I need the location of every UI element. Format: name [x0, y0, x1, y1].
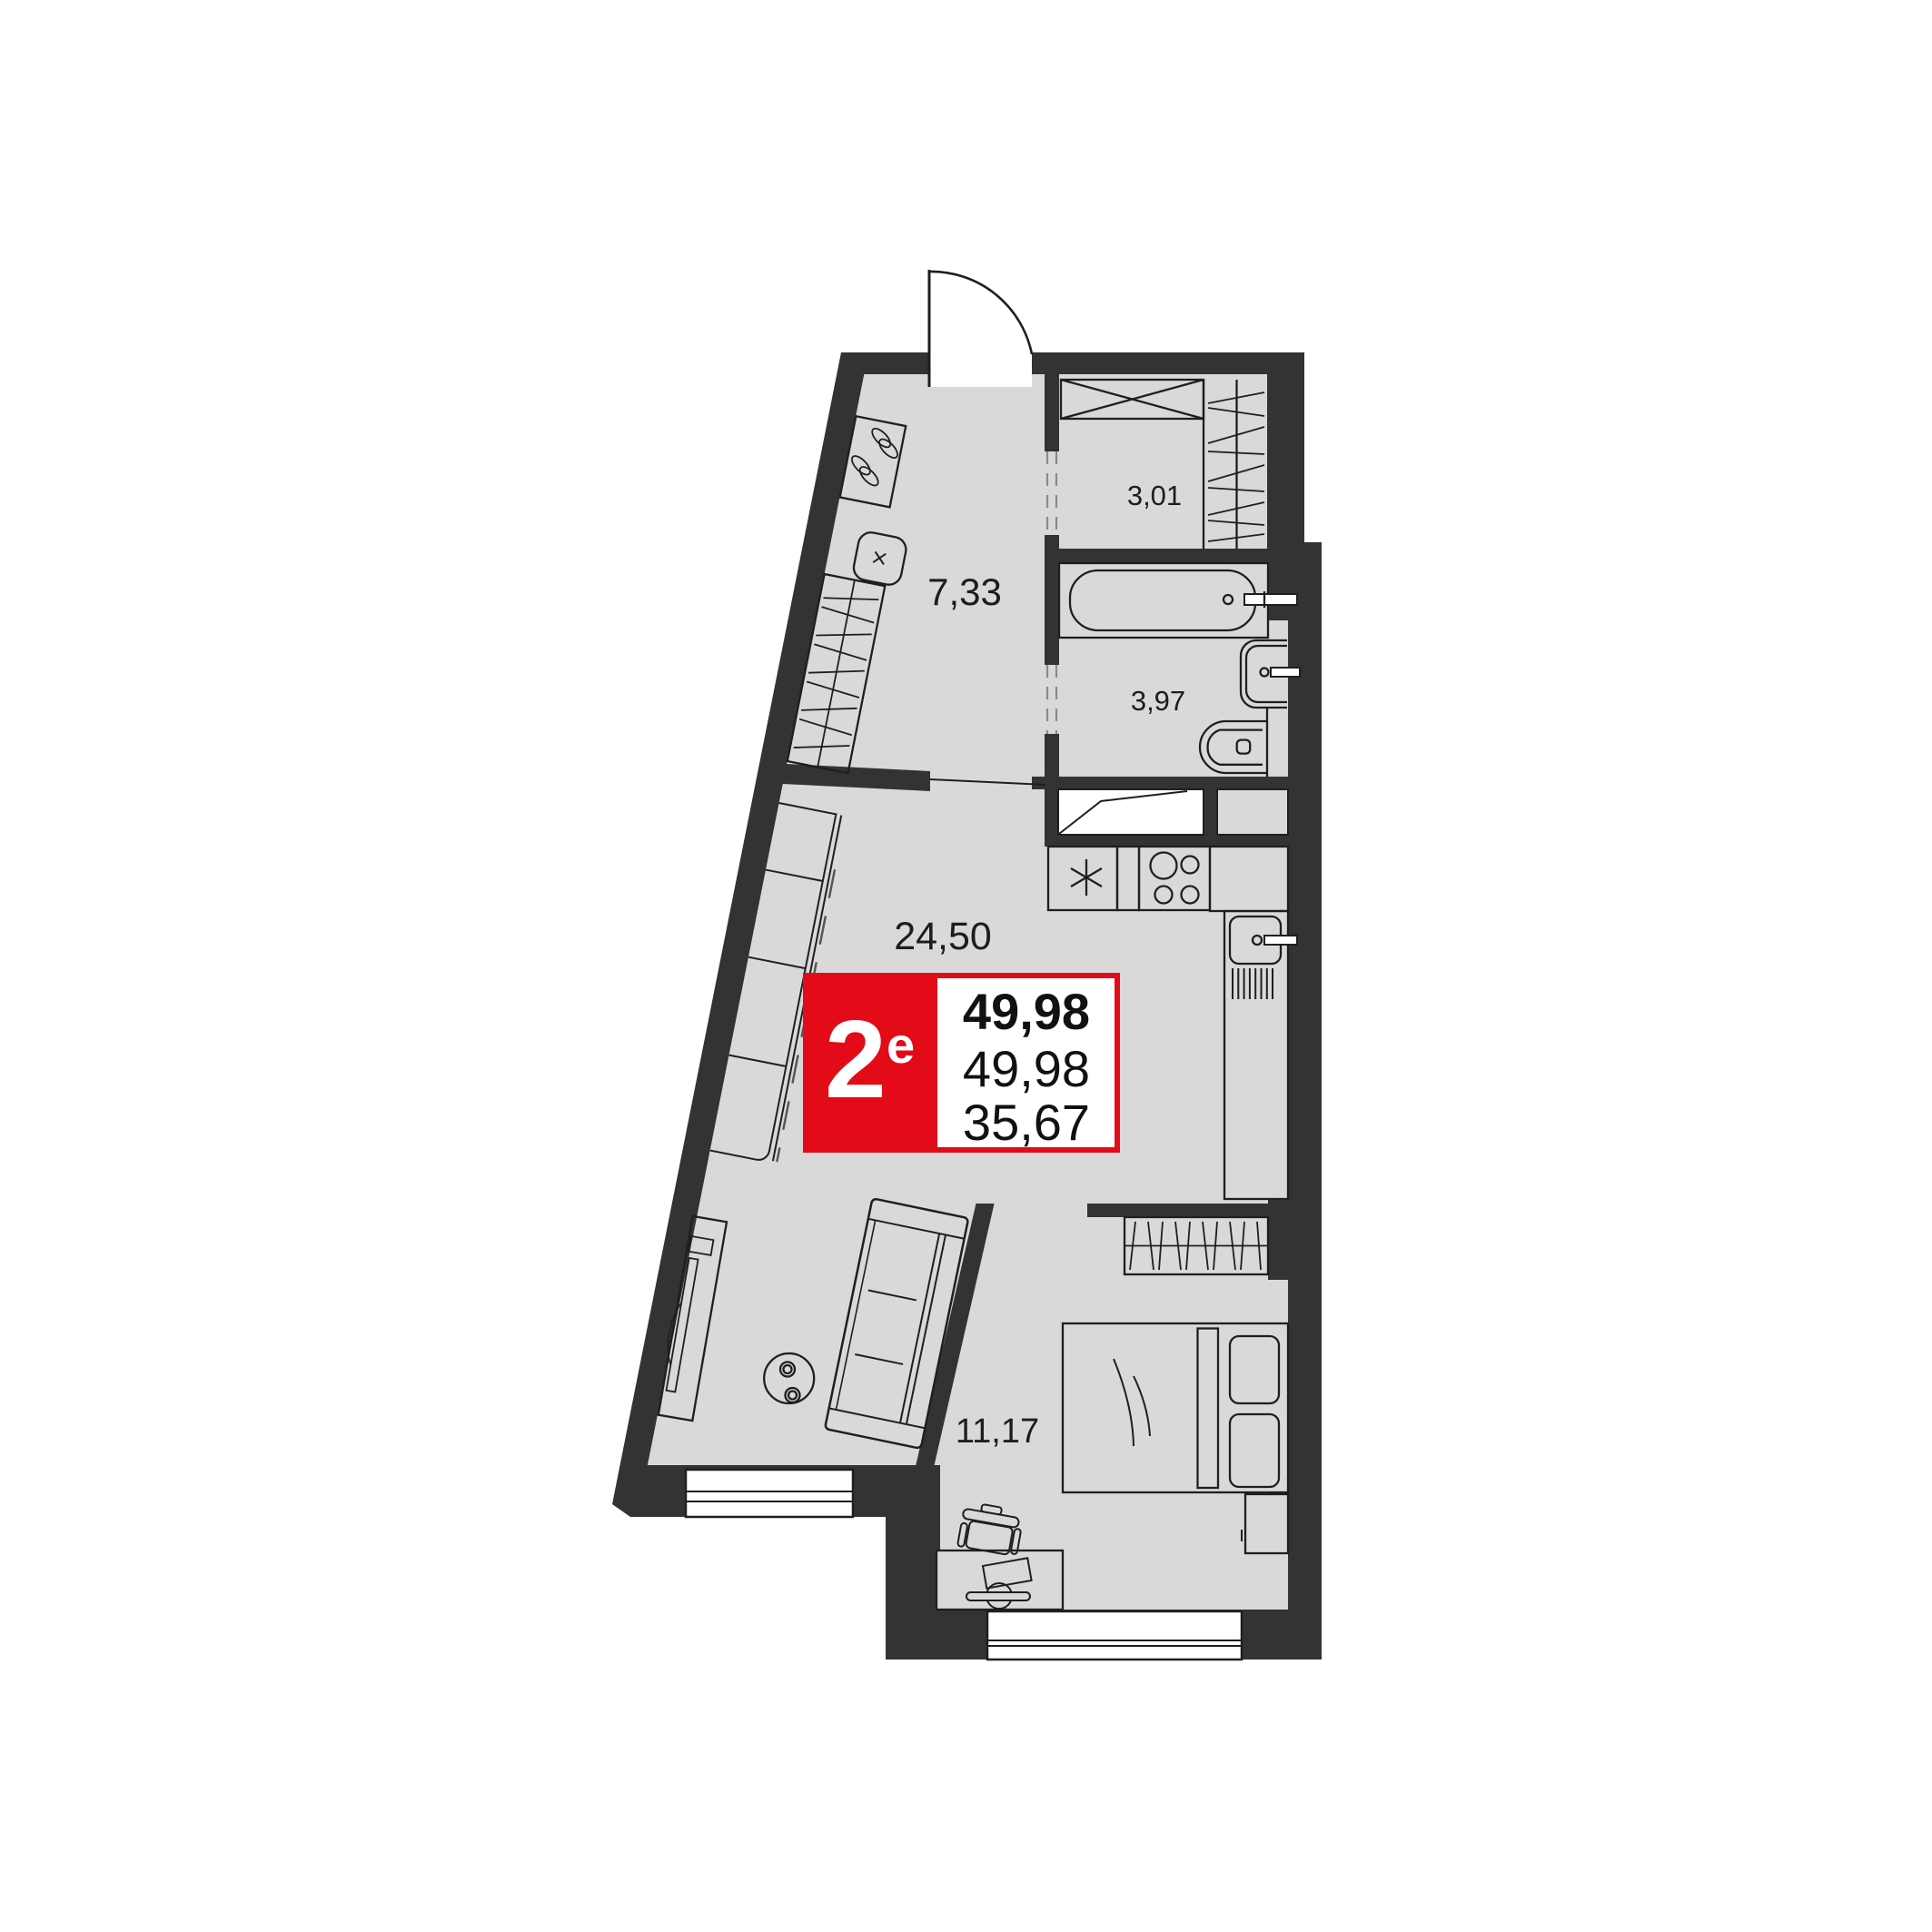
- svg-text:11,17: 11,17: [956, 1412, 1039, 1451]
- svg-text:2: 2: [825, 997, 887, 1121]
- svg-text:3,01: 3,01: [1127, 480, 1182, 511]
- svg-text:7,33: 7,33: [927, 570, 1002, 613]
- svg-text:49,98: 49,98: [963, 1040, 1090, 1097]
- svg-text:е: е: [887, 1016, 915, 1074]
- svg-text:49,98: 49,98: [963, 983, 1090, 1040]
- svg-text:35,67: 35,67: [963, 1094, 1090, 1151]
- svg-text:24,50: 24,50: [894, 915, 992, 958]
- svg-text:3,97: 3,97: [1131, 685, 1185, 717]
